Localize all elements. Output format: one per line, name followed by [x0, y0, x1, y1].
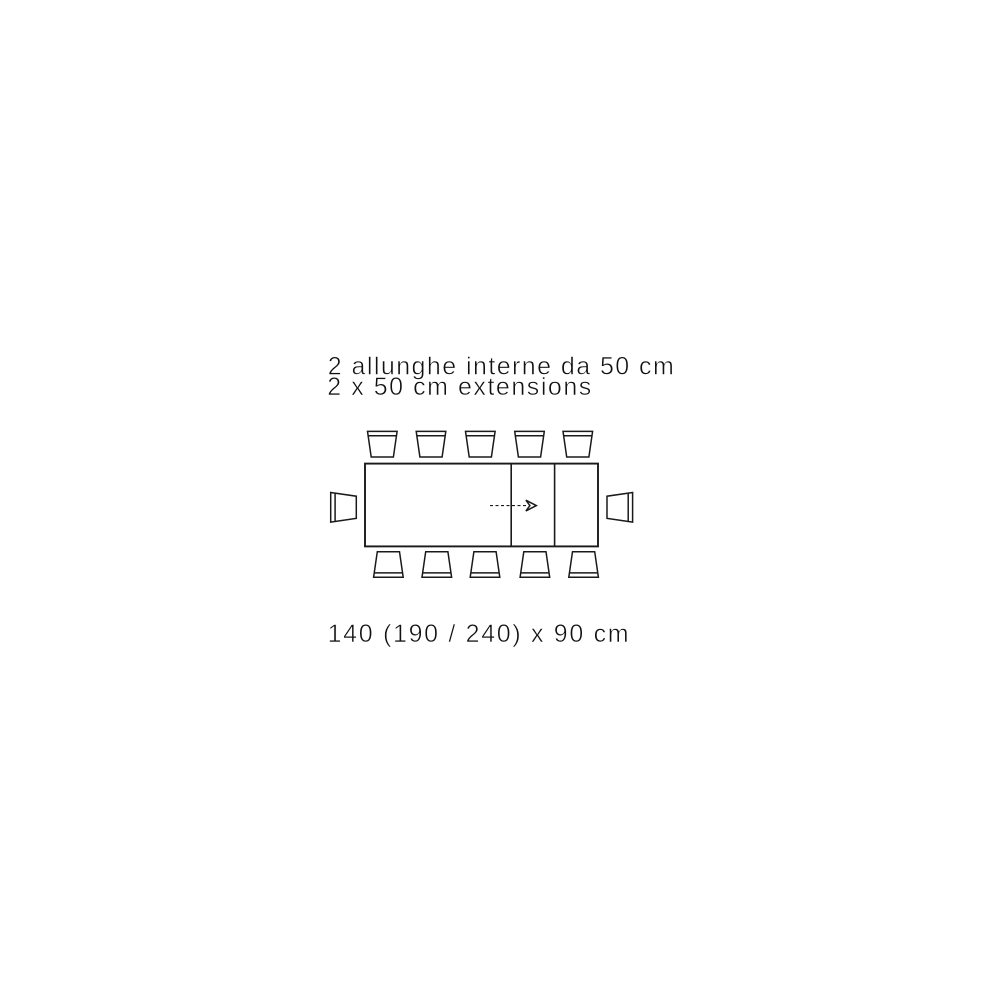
svg-text:140 (190 / 240) x 90 cm: 140 (190 / 240) x 90 cm: [328, 620, 629, 648]
svg-text:2 x 50 cm extensions: 2 x 50 cm extensions: [327, 373, 591, 401]
